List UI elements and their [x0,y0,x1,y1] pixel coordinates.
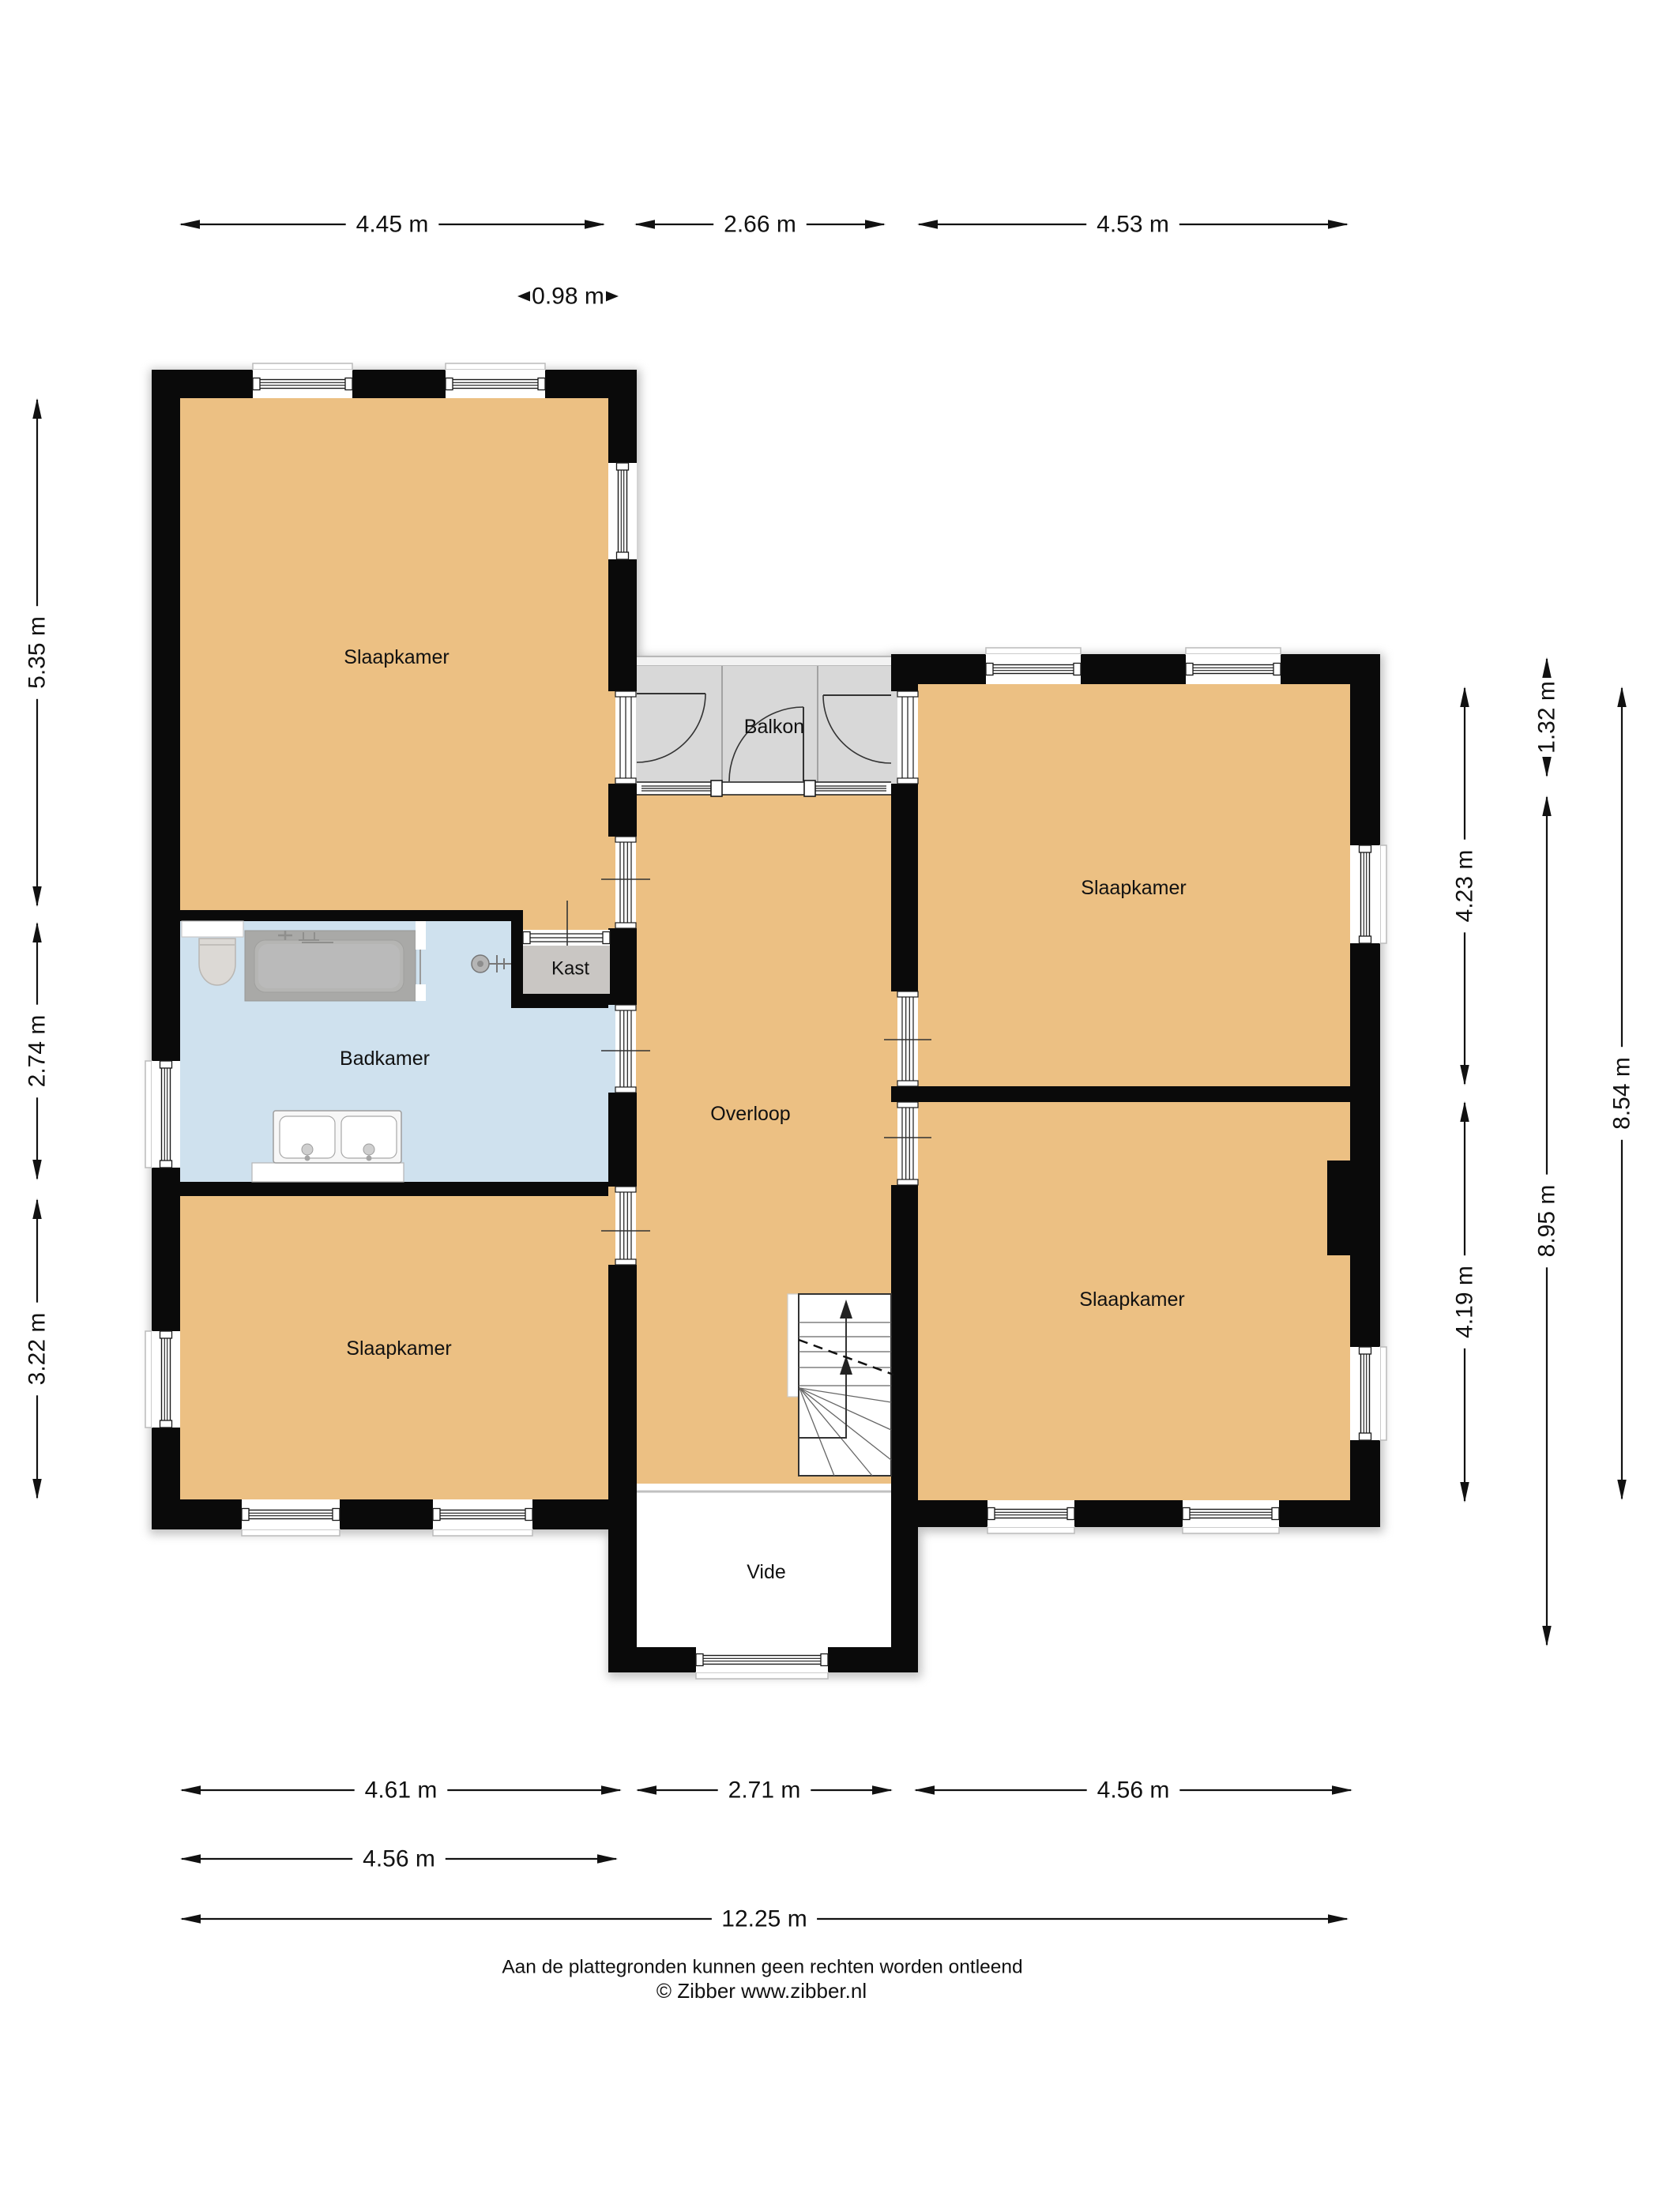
svg-text:8.95 m: 8.95 m [1534,1185,1560,1258]
svg-text:12.25 m: 12.25 m [721,1906,807,1932]
svg-text:4.45 m: 4.45 m [356,212,429,238]
svg-text:8.54 m: 8.54 m [1609,1057,1635,1130]
svg-text:Slaapkamer: Slaapkamer [1081,877,1186,899]
svg-text:Kast: Kast [551,958,589,980]
svg-text:Slaapkamer: Slaapkamer [346,1337,451,1360]
svg-text:4.23 m: 4.23 m [1452,850,1478,923]
svg-text:2.66 m: 2.66 m [724,212,796,238]
svg-text:Slaapkamer: Slaapkamer [344,646,449,668]
svg-text:Overloop: Overloop [710,1103,790,1125]
svg-text:5.35 m: 5.35 m [24,616,51,689]
svg-text:Badkamer: Badkamer [340,1048,430,1070]
svg-text:1.32 m: 1.32 m [1534,681,1560,754]
svg-text:2.74 m: 2.74 m [24,1015,51,1088]
svg-text:Slaapkamer: Slaapkamer [1079,1288,1184,1311]
svg-text:4.56 m: 4.56 m [1097,1777,1170,1804]
svg-text:3.22 m: 3.22 m [24,1313,51,1386]
svg-text:Balkon: Balkon [744,716,804,738]
svg-text:4.19 m: 4.19 m [1452,1266,1478,1338]
svg-text:4.53 m: 4.53 m [1097,212,1169,238]
svg-text:Aan de plattegronden kunnen ge: Aan de plattegronden kunnen geen rechten… [502,1957,1022,1978]
svg-text:4.61 m: 4.61 m [365,1777,438,1804]
svg-text:2.71 m: 2.71 m [728,1777,801,1804]
svg-text:0.98 m: 0.98 m [532,284,604,310]
svg-text:Vide: Vide [747,1561,786,1583]
svg-text:© Zibber www.zibber.nl: © Zibber www.zibber.nl [656,1979,867,2003]
svg-text:4.56 m: 4.56 m [363,1846,435,1872]
